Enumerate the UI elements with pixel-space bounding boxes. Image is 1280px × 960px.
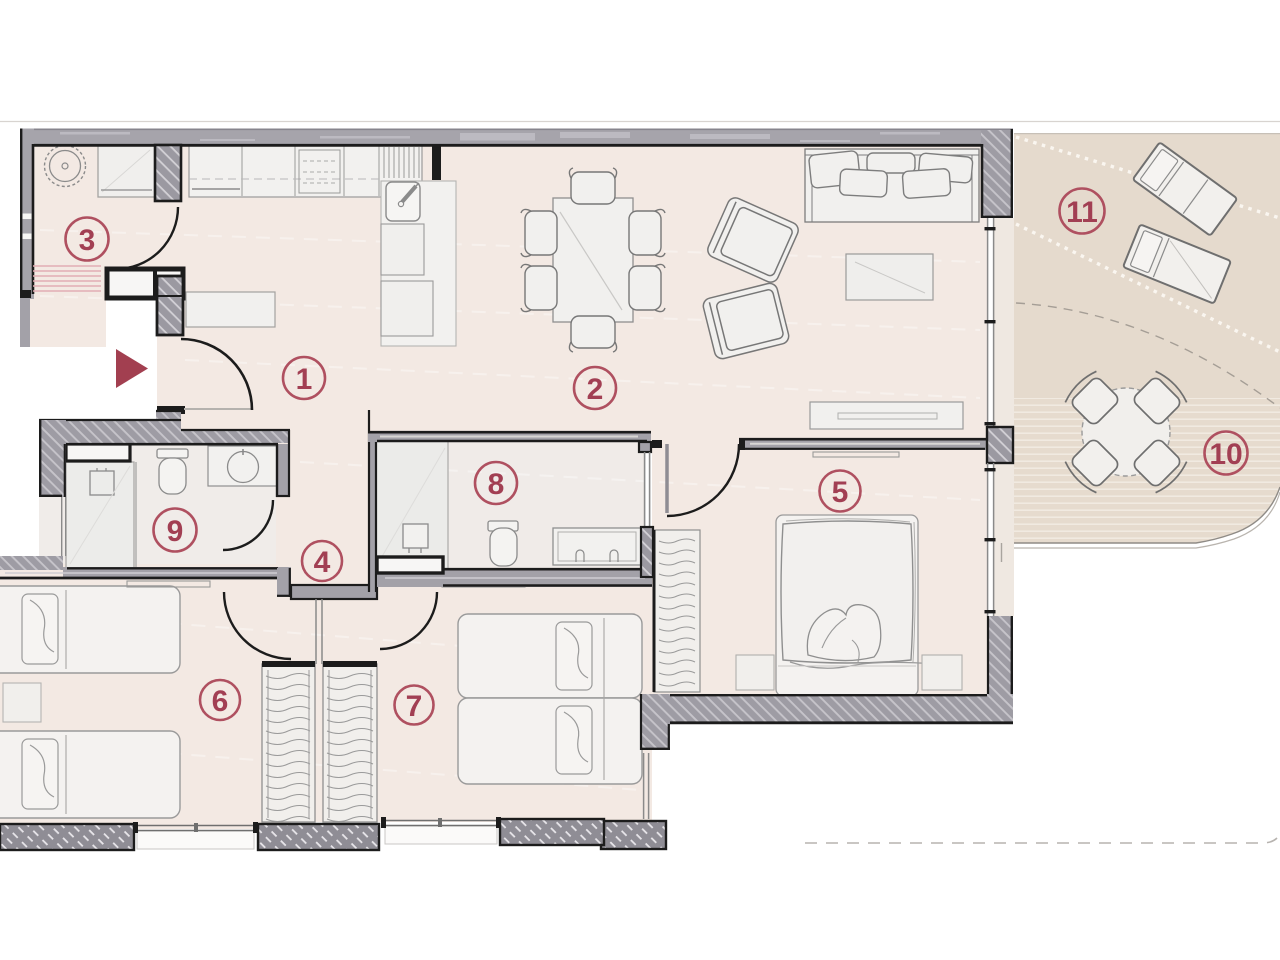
svg-text:5: 5	[832, 476, 849, 509]
svg-text:3: 3	[79, 224, 96, 257]
svg-text:7: 7	[406, 690, 423, 723]
svg-text:2: 2	[587, 373, 604, 406]
svg-text:4: 4	[314, 546, 331, 579]
svg-text:10: 10	[1209, 438, 1242, 471]
svg-text:11: 11	[1066, 196, 1098, 229]
svg-text:1: 1	[296, 363, 313, 396]
svg-text:6: 6	[212, 685, 229, 718]
svg-text:8: 8	[488, 468, 505, 501]
svg-text:9: 9	[167, 515, 184, 548]
